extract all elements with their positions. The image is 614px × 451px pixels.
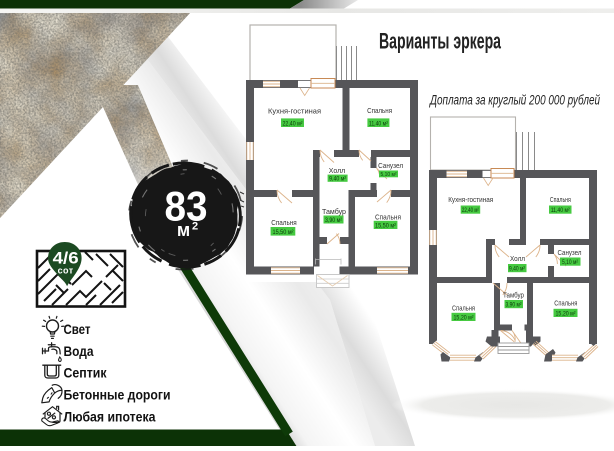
svg-text:2: 2 [192,221,198,233]
svg-text:5,10 м²: 5,10 м² [562,259,578,266]
svg-text:5,10 м²: 5,10 м² [381,172,397,178]
svg-text:м: м [177,220,190,240]
svg-text:Спальня: Спальня [367,106,392,115]
svg-text:Септик: Септик [64,366,107,381]
svg-text:Спальня: Спальня [375,213,401,222]
svg-text:3,90 м²: 3,90 м² [325,218,342,224]
svg-text:Тамбур: Тамбур [322,207,346,216]
svg-text:Любая ипотека: Любая ипотека [64,410,156,425]
svg-text:Спальня: Спальня [452,304,475,313]
svg-text:Спальня: Спальня [271,218,297,227]
svg-text:9,40 м²: 9,40 м² [329,177,346,183]
svg-text:11,40 м²: 11,40 м² [551,208,570,214]
svg-text:Санузел: Санузел [558,250,582,257]
svg-text:15,20 м²: 15,20 м² [556,310,576,317]
svg-text:15,50 м²: 15,50 м² [273,229,294,236]
svg-text:22,40 м²: 22,40 м² [462,208,479,214]
svg-text:сот: сот [58,266,74,276]
svg-text:Санузел: Санузел [378,161,403,170]
svg-text:Кухня-гостиная: Кухня-гостиная [268,107,321,116]
svg-text:15,50 м²: 15,50 м² [375,222,396,229]
svg-text:15,20 м²: 15,20 м² [454,314,474,321]
svg-text:Свет: Свет [64,322,91,337]
svg-text:Кухня-гостиная: Кухня-гостиная [448,197,493,204]
svg-text:Вода: Вода [64,344,94,359]
svg-text:Холл: Холл [329,166,346,175]
svg-text:Холл: Холл [510,256,525,263]
svg-text:Варианты эркера: Варианты эркера [379,29,501,54]
svg-text:22,40 м²: 22,40 м² [283,120,303,127]
svg-text:Спальня: Спальня [550,197,571,204]
svg-text:11,40 м²: 11,40 м² [369,120,388,127]
svg-text:9,40 м²: 9,40 м² [509,266,525,273]
svg-text:3,90 м²: 3,90 м² [506,302,522,309]
svg-text:Спальня: Спальня [554,299,577,308]
svg-text:Тамбур: Тамбур [503,292,524,300]
svg-text:Доплата за круглый 200 000 ру: Доплата за круглый 200 000 рублей [429,93,601,108]
svg-text:Бетонные дороги: Бетонные дороги [64,388,171,403]
